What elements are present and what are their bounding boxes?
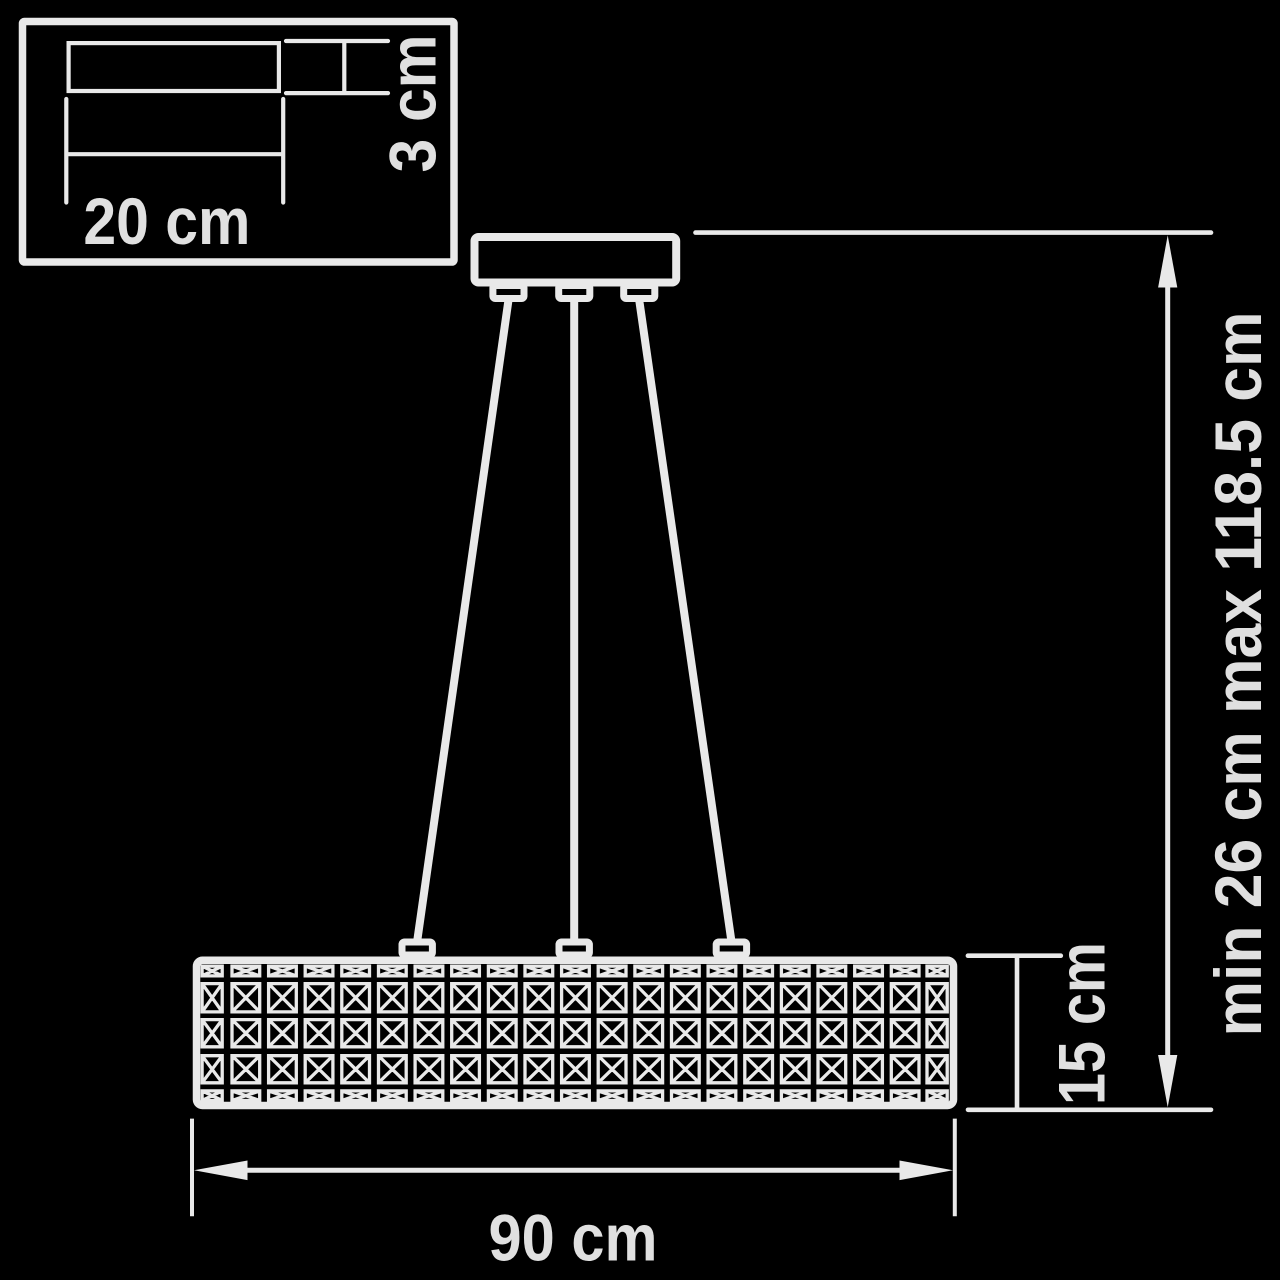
svg-text:3 cm: 3 cm — [376, 35, 450, 173]
svg-text:90 cm: 90 cm — [489, 1201, 658, 1275]
svg-text:min 26 cm max 118.5 cm: min 26 cm max 118.5 cm — [1201, 312, 1275, 1037]
svg-text:15 cm: 15 cm — [1045, 942, 1119, 1105]
svg-text:20 cm: 20 cm — [83, 184, 250, 258]
